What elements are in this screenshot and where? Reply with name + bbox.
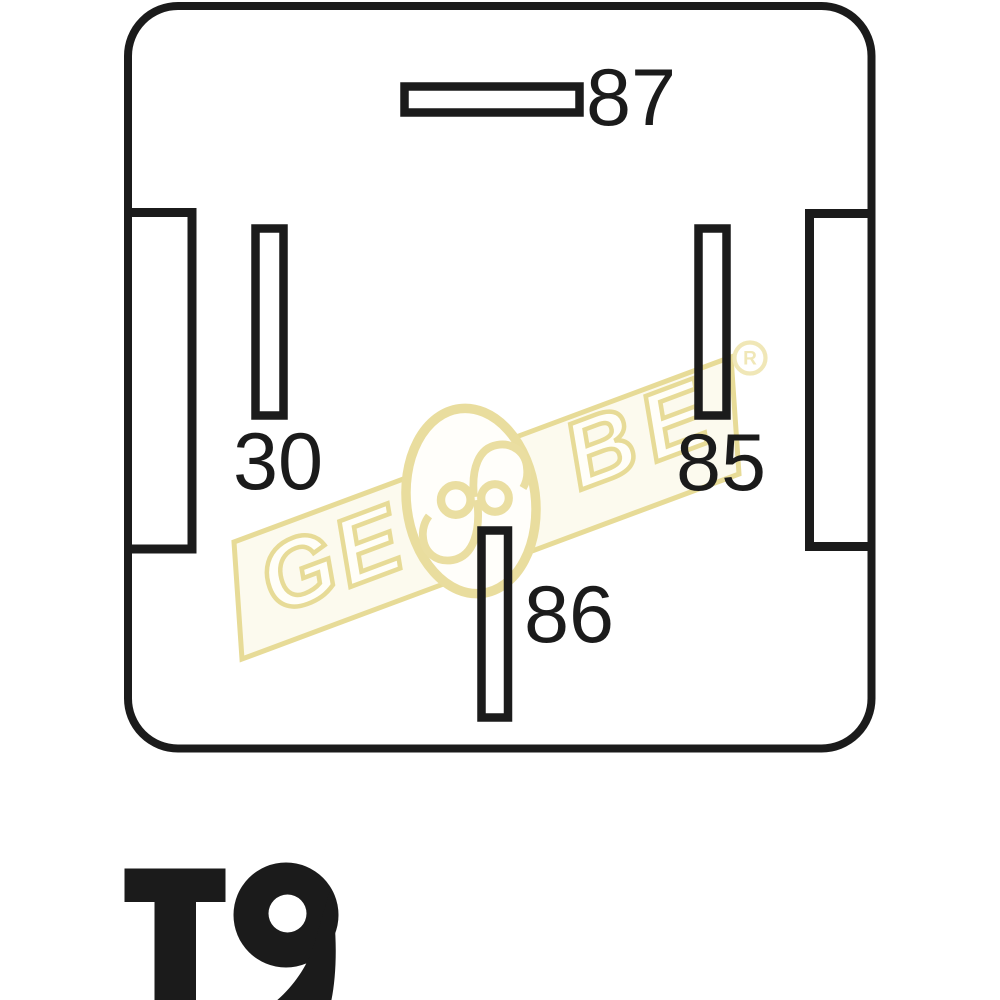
svg-text:85: 85: [676, 418, 766, 508]
svg-text:86: 86: [524, 570, 614, 660]
svg-text:R: R: [743, 349, 757, 370]
svg-text:30: 30: [233, 417, 323, 507]
svg-text:87: 87: [586, 53, 676, 143]
